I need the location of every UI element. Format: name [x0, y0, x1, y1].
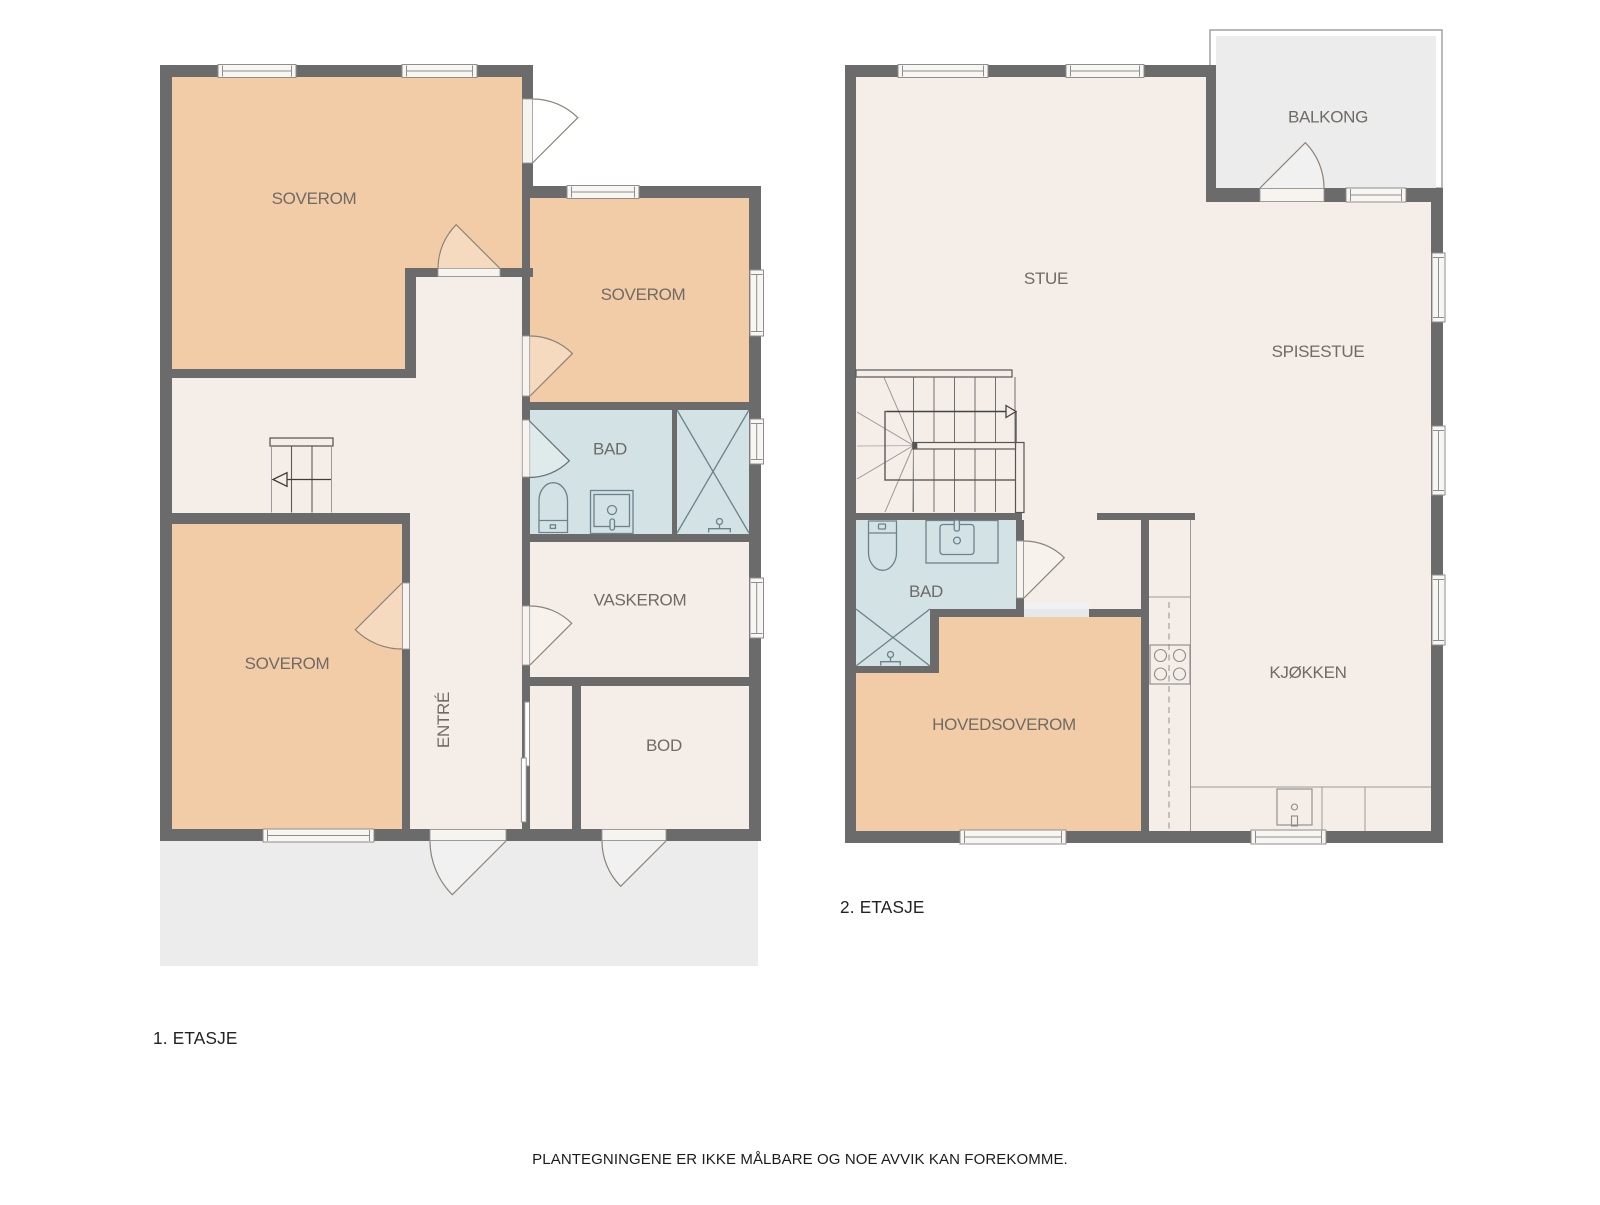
svg-text:HOVEDSOVEROM: HOVEDSOVEROM — [932, 715, 1076, 734]
svg-text:KJØKKEN: KJØKKEN — [1269, 663, 1346, 682]
svg-text:2. ETASJE: 2. ETASJE — [840, 897, 925, 917]
svg-text:SPISESTUE: SPISESTUE — [1272, 342, 1365, 361]
svg-text:BAD: BAD — [909, 582, 943, 601]
svg-text:SOVEROM: SOVEROM — [601, 285, 686, 304]
svg-text:BOD: BOD — [646, 736, 682, 755]
svg-text:ENTRÉ: ENTRÉ — [434, 692, 453, 748]
svg-text:BAD: BAD — [593, 440, 627, 459]
svg-text:STUE: STUE — [1024, 269, 1068, 288]
svg-text:SOVEROM: SOVEROM — [272, 189, 357, 208]
svg-text:VASKEROM: VASKEROM — [594, 591, 687, 610]
svg-text:BALKONG: BALKONG — [1288, 108, 1368, 127]
svg-text:1. ETASJE: 1. ETASJE — [153, 1028, 238, 1048]
svg-text:SOVEROM: SOVEROM — [245, 654, 330, 673]
svg-text:PLANTEGNINGENE ER IKKE MÅLBARE: PLANTEGNINGENE ER IKKE MÅLBARE OG NOE AV… — [532, 1151, 1068, 1168]
